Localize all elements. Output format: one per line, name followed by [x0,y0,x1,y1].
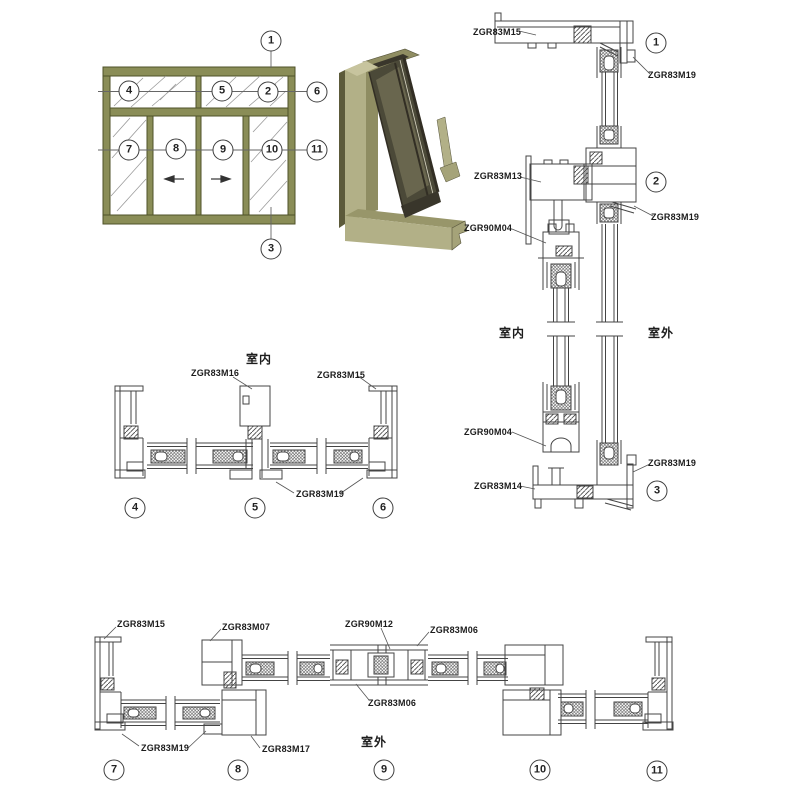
balloon-hsection-bottom-10: 10 [530,760,551,781]
balloon-hsection-bottom-7: 7 [104,760,125,781]
horizontal-section-bottom-drawing [95,637,673,735]
room-label-indoor-hsec: 室内 [246,350,272,367]
part-label-zgr90m04-upper: ZGR90M04 [464,223,512,233]
balloon-elevation-11: 11 [307,140,328,161]
balloon-elevation-8: 8 [166,139,187,160]
technical-drawing-canvas: 1 2 3 4 5 6 7 8 9 10 11 1 2 3 4 5 6 7 8 … [0,0,800,800]
part-label-zgr83m15-head: ZGR83M15 [473,27,521,37]
balloon-hsection-top-5: 5 [245,498,266,519]
part-label-zgr83m14: ZGR83M14 [474,481,522,491]
part-label-zgr83m19-bottom: ZGR83M19 [648,458,696,468]
part-label-zgr83m06-top: ZGR83M06 [430,625,478,635]
part-label-zgr90m04-lower: ZGR90M04 [464,427,512,437]
part-label-zgr83m19-mid: ZGR83M19 [651,212,699,222]
part-label-zgr83m13: ZGR83M13 [474,171,522,181]
room-label-indoor-vsec: 室内 [499,324,525,341]
balloon-hsection-bottom-9: 9 [374,760,395,781]
balloon-elevation-4: 4 [119,81,140,102]
balloon-hsection-top-6: 6 [373,498,394,519]
balloon-vsection-3: 3 [647,481,668,502]
balloon-elevation-6: 6 [307,82,328,103]
room-label-outdoor-vsec: 室外 [648,324,674,341]
balloon-elevation-3: 3 [261,239,282,260]
part-label-zgr83m19-hsec: ZGR83M19 [296,489,344,499]
part-label-zgr83m15-jamb-b: ZGR83M15 [117,619,165,629]
horizontal-section-top-drawing [115,386,397,479]
balloon-elevation-5: 5 [212,81,233,102]
part-label-zgr83m06-bottom: ZGR83M06 [368,698,416,708]
line-art-layer [0,0,800,800]
balloon-vsection-1: 1 [646,33,667,54]
vertical-section-drawing [495,13,636,510]
part-label-zgr83m17: ZGR83M17 [262,744,310,754]
part-label-zgr83m15-jamb: ZGR83M15 [317,370,365,380]
part-label-zgr90m12: ZGR90M12 [345,619,393,629]
balloon-elevation-9: 9 [213,140,234,161]
balloon-elevation-2: 2 [258,82,279,103]
part-label-zgr83m19-top: ZGR83M19 [648,70,696,80]
balloon-elevation-10: 10 [262,140,283,161]
part-label-zgr83m07: ZGR83M07 [222,622,270,632]
balloon-elevation-7: 7 [119,140,140,161]
balloon-elevation-1: 1 [261,31,282,52]
part-label-zgr83m16: ZGR83M16 [191,368,239,378]
balloon-hsection-bottom-8: 8 [228,760,249,781]
iso-corner-3d-view [339,49,467,250]
part-label-zgr83m19-b: ZGR83M19 [141,743,189,753]
balloon-vsection-2: 2 [646,172,667,193]
balloon-hsection-top-4: 4 [125,498,146,519]
balloon-hsection-bottom-11: 11 [647,761,668,782]
room-label-outdoor-hsec: 室外 [361,733,387,750]
